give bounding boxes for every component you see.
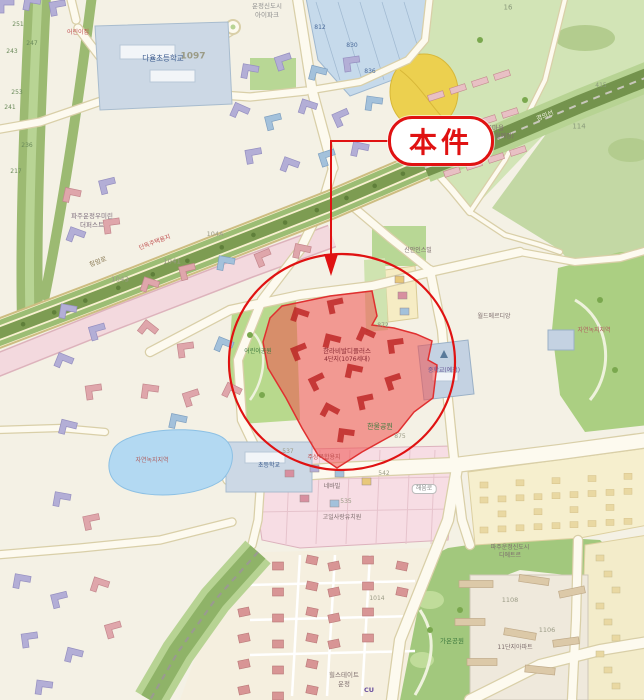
- subject-arrow-icon: [324, 254, 338, 276]
- subject-callout-label: 本件: [409, 121, 473, 161]
- subject-circle: [229, 254, 455, 470]
- map-canvas: 다율초등학교운정신도시아이파크1097초롱꽃마을(2024년11월예정)파주운정…: [0, 0, 644, 700]
- subject-callout: 本件: [388, 116, 494, 166]
- subject-leader-line: [331, 141, 393, 256]
- subject-annotation-svg: [0, 0, 644, 700]
